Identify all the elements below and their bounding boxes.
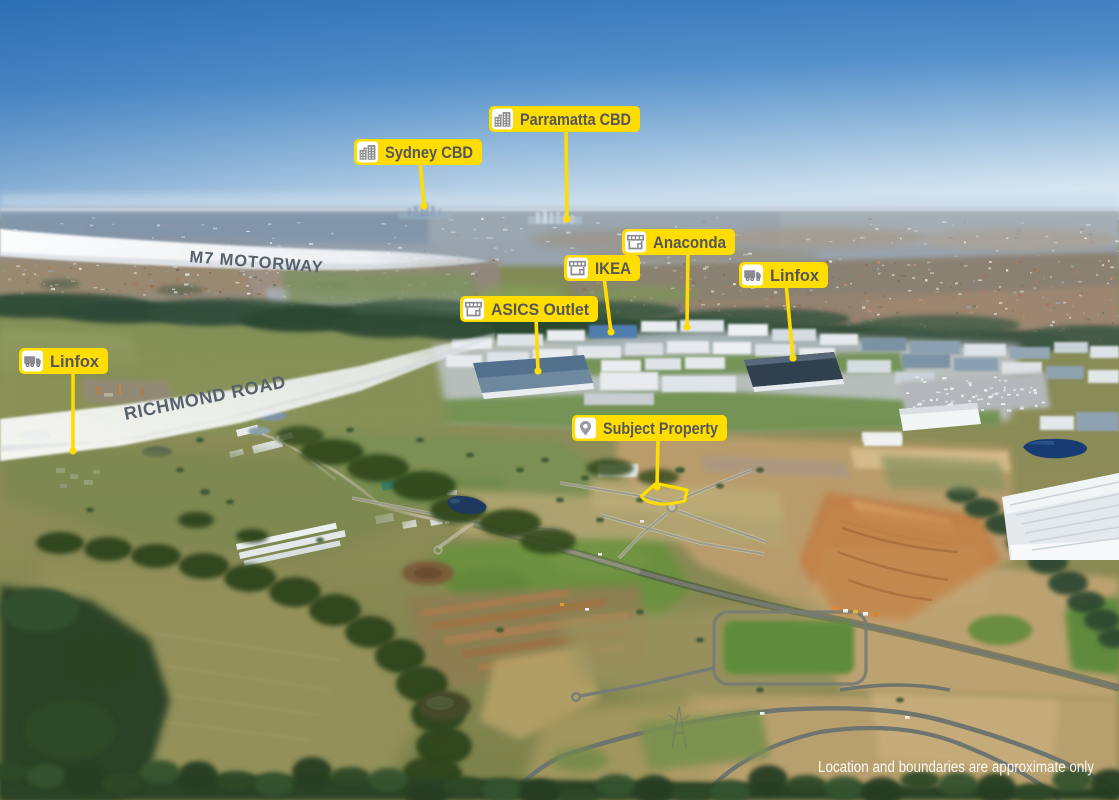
svg-text:IKEA: IKEA [595,259,631,278]
svg-text:Linfox: Linfox [770,266,820,285]
svg-text:Anaconda: Anaconda [653,233,726,252]
svg-text:Sydney CBD: Sydney CBD [385,143,473,162]
svg-text:Linfox: Linfox [50,352,100,371]
svg-text:Subject Property: Subject Property [603,419,718,438]
svg-text:Parramatta CBD: Parramatta CBD [520,110,631,129]
svg-text:Location and boundaries are ap: Location and boundaries are approximate … [818,759,1094,776]
svg-text:ASICS Outlet: ASICS Outlet [491,300,589,319]
